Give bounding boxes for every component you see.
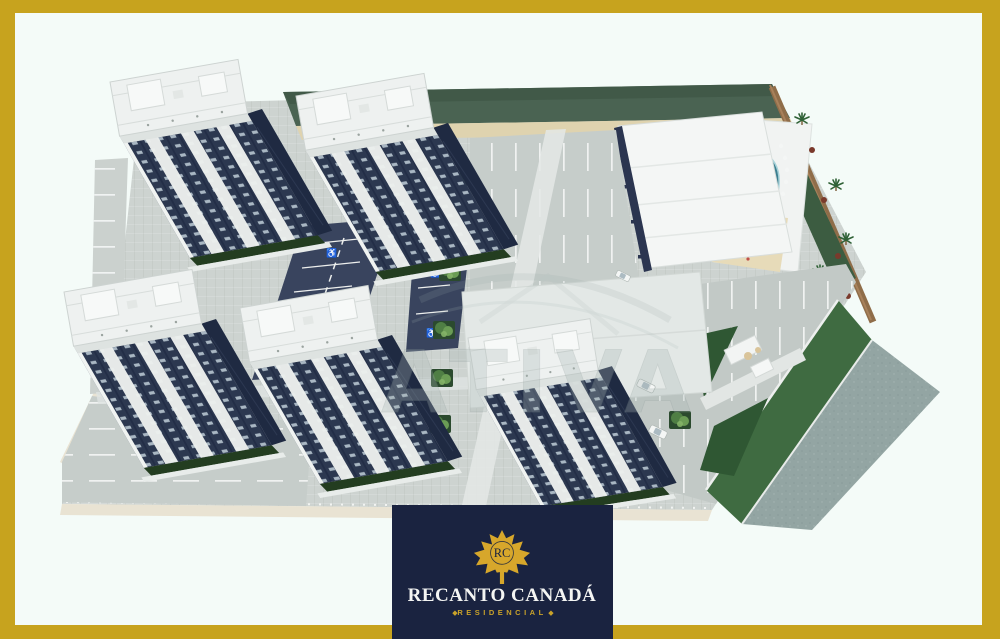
watermark-text: ATIVA xyxy=(381,333,699,433)
diamond-icon: ◆ xyxy=(548,610,554,617)
logo-monogram: RC xyxy=(494,546,511,560)
site-render: ♿ ♿ ♿ ♿ xyxy=(0,0,1000,639)
clubhouse xyxy=(614,112,792,272)
logo-subtitle: RESIDENCIAL xyxy=(457,608,546,617)
logo-card: RC RECANTO CANADÁ ◆ RESIDENCIAL ◆ xyxy=(392,505,613,639)
handicap-icon: ♿ xyxy=(326,247,337,258)
poster: ♿ ♿ ♿ ♿ xyxy=(0,0,1000,639)
logo-name: RECANTO CANADÁ xyxy=(408,584,597,606)
